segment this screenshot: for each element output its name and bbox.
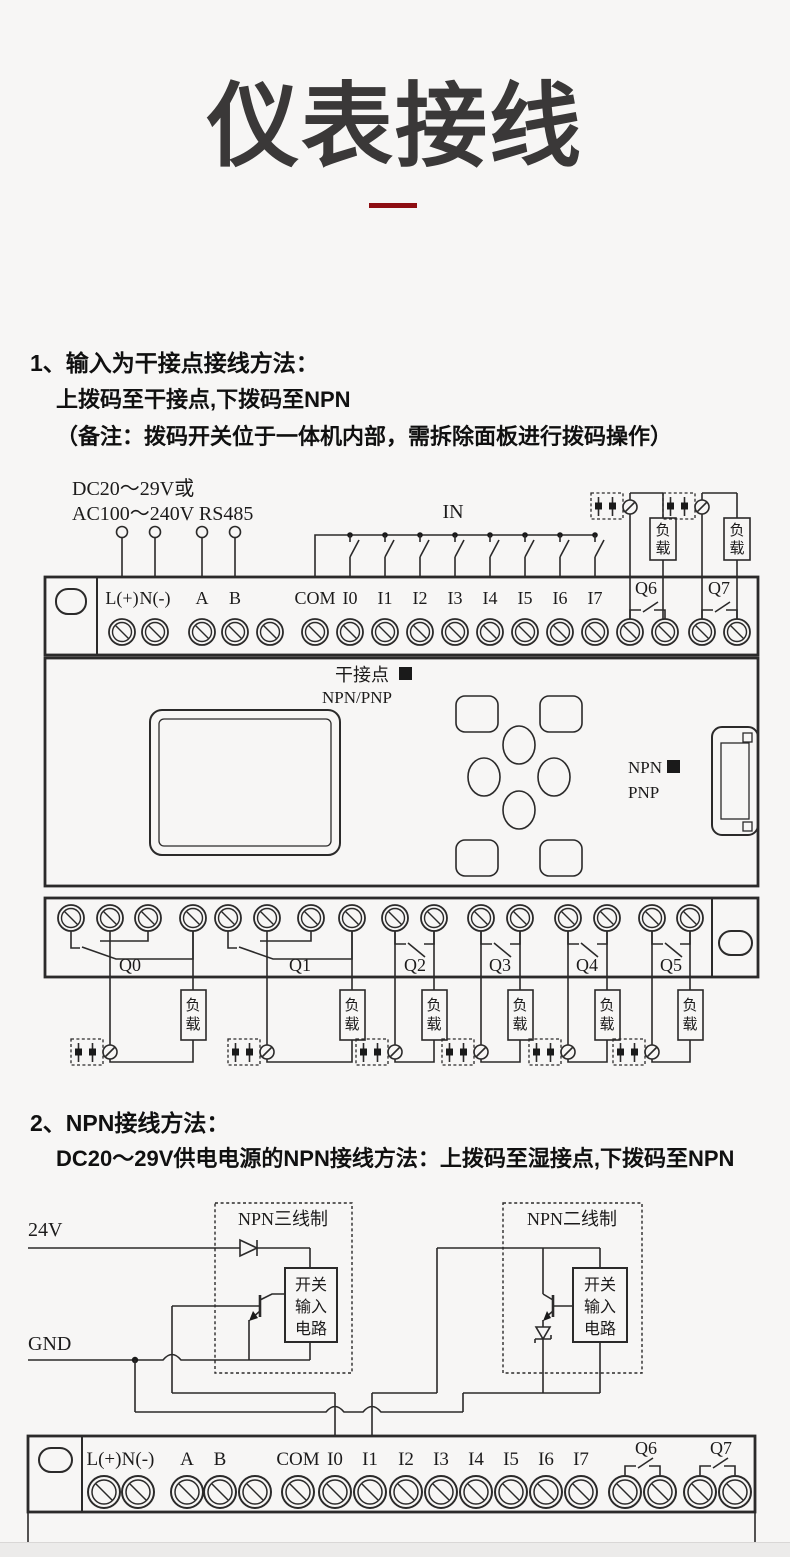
- interconnect-wires: [135, 1248, 600, 1436]
- circuit-text: 输入: [295, 1298, 327, 1316]
- key-bottom-left: [456, 840, 498, 876]
- page-title: 仪表接线: [0, 52, 790, 185]
- top-terminal-strip: L(+) N(-) A B COM I0 I1 I2 I3 I4 I5 I6 I…: [45, 577, 758, 655]
- surge-suppressor-icon: [613, 1039, 645, 1065]
- circuit-text: 电路: [584, 1320, 616, 1338]
- q5-contact-symbol: [652, 931, 690, 957]
- surge-suppressor-icon: [228, 1039, 260, 1065]
- dip-dry-contact-label: 干接点: [335, 665, 389, 685]
- load-char: 负: [682, 997, 697, 1014]
- svg-text:L(+): L(+): [87, 1449, 122, 1470]
- ac-source-icon: [260, 1045, 274, 1059]
- q4-load-circuit: 负 载: [529, 931, 620, 1065]
- q3-contact-symbol: [481, 931, 520, 957]
- mounting-hole: [719, 931, 752, 955]
- key-left: [468, 758, 500, 796]
- v24-rail: [28, 1240, 310, 1268]
- load-char: 载: [729, 540, 744, 557]
- load-char: 负: [512, 997, 527, 1014]
- ac-source-icon: [561, 1045, 575, 1059]
- npn-transistor-icon: [172, 1294, 310, 1360]
- svg-text:I4: I4: [483, 588, 498, 608]
- ac-source-icon: [623, 500, 637, 514]
- q6-contact-symbol: [630, 602, 665, 619]
- svg-text:N(-): N(-): [122, 1449, 155, 1470]
- ac-source-icon: [695, 500, 709, 514]
- svg-text:I2: I2: [398, 1449, 414, 1470]
- q4-contact-symbol: [568, 931, 607, 957]
- svg-text:I4: I4: [468, 1449, 484, 1470]
- svg-text:I6: I6: [538, 1449, 554, 1470]
- svg-text:A: A: [196, 588, 209, 608]
- power-input-leads: [117, 527, 241, 578]
- section1-heading: 1、输入为干接点接线方法：: [30, 344, 319, 378]
- keypad: [456, 696, 582, 876]
- surge-suppressor-icon: [442, 1039, 474, 1065]
- relay-q7-label: Q7: [708, 578, 730, 598]
- sensor3-title: NPN三线制: [238, 1209, 328, 1229]
- load-char: 负: [729, 522, 744, 539]
- svg-text:B: B: [214, 1449, 227, 1470]
- relay-q6-label: Q6: [635, 1438, 657, 1458]
- q2-contact-symbol: [395, 931, 434, 957]
- ac-source-icon: [103, 1045, 117, 1059]
- wiring-manual-page: 仪表接线 1、输入为干接点接线方法： 上拨码至干接点,下拨码至NPN （备注：拨…: [0, 0, 790, 1556]
- surge-suppressor-icon: [71, 1039, 103, 1065]
- load-char: 负: [344, 997, 359, 1014]
- svg-text:Q5: Q5: [660, 955, 682, 975]
- in-label: IN: [442, 501, 463, 523]
- terminal-screws-row: [88, 1476, 751, 1508]
- svg-text:L(+): L(+): [105, 588, 138, 609]
- svg-text:I2: I2: [413, 588, 428, 608]
- dip-npn-pnp-label: NPN/PNP: [322, 688, 392, 707]
- q6-contact-symbol: [625, 1458, 660, 1475]
- key-right: [538, 758, 570, 796]
- terminal-labels-row: L(+) N(-) A B COM I0 I1 I2 I3 I4 I5 I6 I…: [87, 1449, 589, 1470]
- key-bottom-right: [540, 840, 582, 876]
- svg-text:B: B: [229, 588, 241, 608]
- ac-source-icon: [474, 1045, 488, 1059]
- load-char: 载: [185, 1016, 200, 1033]
- svg-text:I3: I3: [433, 1449, 449, 1470]
- bottom-terminal-strip: Q0 Q1 Q2 Q3 Q4 Q5: [45, 898, 758, 977]
- key-top-right: [540, 696, 582, 732]
- section2-heading: 2、NPN接线方法：: [30, 1104, 229, 1138]
- svg-text:N(-): N(-): [140, 588, 171, 609]
- q7-contact-symbol: [702, 602, 737, 619]
- key-up: [503, 726, 535, 764]
- circuit-text: 电路: [295, 1320, 327, 1338]
- q2-load-circuit: 负 载: [356, 931, 447, 1065]
- svg-text:I0: I0: [327, 1449, 343, 1470]
- ac-source-icon: [388, 1045, 402, 1059]
- svg-text:Q1: Q1: [289, 955, 311, 975]
- dip2-pnp-label: PNP: [628, 783, 659, 802]
- ac-source-icon: [645, 1045, 659, 1059]
- svg-text:I5: I5: [518, 588, 533, 608]
- terminal-screws-row: [58, 905, 703, 931]
- zener-diode-icon: [535, 1327, 551, 1393]
- svg-text:I0: I0: [343, 588, 358, 608]
- surge-suppressor-icon: [356, 1039, 388, 1065]
- load-char: 载: [426, 1016, 441, 1033]
- next-section-edge: [0, 1542, 790, 1557]
- section2-line1: DC20～29V供电电源的NPN接线方法：上拨码至湿接点,下拨码至NPN: [56, 1141, 734, 1173]
- load-char: 载: [655, 540, 670, 557]
- load-char: 载: [344, 1016, 359, 1033]
- svg-text:COM: COM: [276, 1449, 319, 1470]
- svg-text:Q0: Q0: [119, 955, 141, 975]
- q6-load-circuit: 负 载: [591, 493, 676, 619]
- relay-q6-label: Q6: [635, 578, 657, 598]
- svg-text:Q2: Q2: [404, 955, 426, 975]
- diode-icon: [240, 1240, 257, 1256]
- power-dc-label: DC20～29V或: [72, 477, 194, 500]
- svg-text:Q4: Q4: [576, 955, 598, 975]
- dip2-npn-label: NPN: [628, 758, 662, 777]
- relay-output-labels: Q0 Q1 Q2 Q3 Q4 Q5: [119, 955, 682, 975]
- svg-text:Q3: Q3: [489, 955, 511, 975]
- device-front-panel: 干接点 NPN/PNP NPN PNP: [45, 658, 758, 886]
- lower-terminal-strip: L(+) N(-) A B COM I0 I1 I2 I3 I4 I5 I6 I…: [28, 1436, 755, 1556]
- svg-text:I7: I7: [588, 588, 603, 608]
- svg-text:I1: I1: [378, 588, 393, 608]
- q3-load-circuit: 负 载: [442, 931, 533, 1065]
- section1-line1: 上拨码至干接点,下拨码至NPN: [56, 382, 351, 414]
- gnd-rail: [28, 1355, 310, 1364]
- svg-text:I3: I3: [448, 588, 463, 608]
- v24-label: 24V: [28, 1219, 63, 1241]
- surge-suppressor-icon: [663, 493, 695, 519]
- mounting-hole: [39, 1448, 72, 1472]
- key-down: [503, 791, 535, 829]
- npn-three-wire-sensor: NPN三线制 开关 输入 电路: [172, 1203, 352, 1373]
- q7-contact-symbol: [700, 1458, 735, 1475]
- terminal-labels-row: L(+) N(-) A B COM I0 I1 I2 I3 I4 I5 I6 I…: [105, 588, 602, 609]
- surge-suppressor-icon: [529, 1039, 561, 1065]
- input-switches: [350, 535, 604, 577]
- load-char: 载: [682, 1016, 697, 1033]
- lcd-screen: [150, 710, 340, 855]
- q5-load-circuit: 负 载: [613, 931, 703, 1065]
- section1-note: （备注：拨码开关位于一体机内部，需拆除面板进行拨码操作）: [56, 419, 672, 451]
- dry-contact-wiring-diagram: DC20～29V或 AC100～240V RS485 IN: [0, 470, 790, 1095]
- npn-transistor-icon: [543, 1248, 573, 1327]
- mounting-hole: [56, 589, 86, 614]
- circuit-text: 开关: [295, 1276, 327, 1294]
- npn-two-wire-sensor: NPN二线制 开关 输入 电路: [503, 1203, 642, 1393]
- svg-text:I5: I5: [503, 1449, 519, 1470]
- npn-wiring-diagram: 24V GND NPN三线制 开关 输入 电路: [0, 1190, 790, 1556]
- title-divider: [369, 203, 417, 208]
- circuit-text: 输入: [584, 1298, 616, 1316]
- load-char: 负: [185, 997, 200, 1014]
- svg-text:A: A: [180, 1449, 194, 1470]
- load-char: 负: [599, 997, 614, 1014]
- gnd-label: GND: [28, 1333, 71, 1355]
- load-char: 负: [426, 997, 441, 1014]
- dip-switch-mark-icon: [399, 667, 412, 680]
- svg-text:I6: I6: [553, 588, 568, 608]
- svg-text:I7: I7: [573, 1449, 589, 1470]
- load-char: 载: [599, 1016, 614, 1033]
- load-char: 载: [512, 1016, 527, 1033]
- svg-text:COM: COM: [294, 588, 335, 608]
- load-char: 负: [655, 522, 670, 539]
- svg-text:I1: I1: [362, 1449, 378, 1470]
- surge-suppressor-icon: [591, 493, 623, 519]
- key-top-left: [456, 696, 498, 732]
- terminal-screws-row: [109, 619, 750, 645]
- sensor2-title: NPN二线制: [527, 1209, 617, 1229]
- dip-switch-mark-icon: [667, 760, 680, 773]
- power-ac-rs485-label: AC100～240V RS485: [72, 503, 253, 525]
- relay-q7-label: Q7: [710, 1438, 732, 1458]
- side-connector: [712, 727, 758, 835]
- circuit-text: 开关: [584, 1276, 616, 1294]
